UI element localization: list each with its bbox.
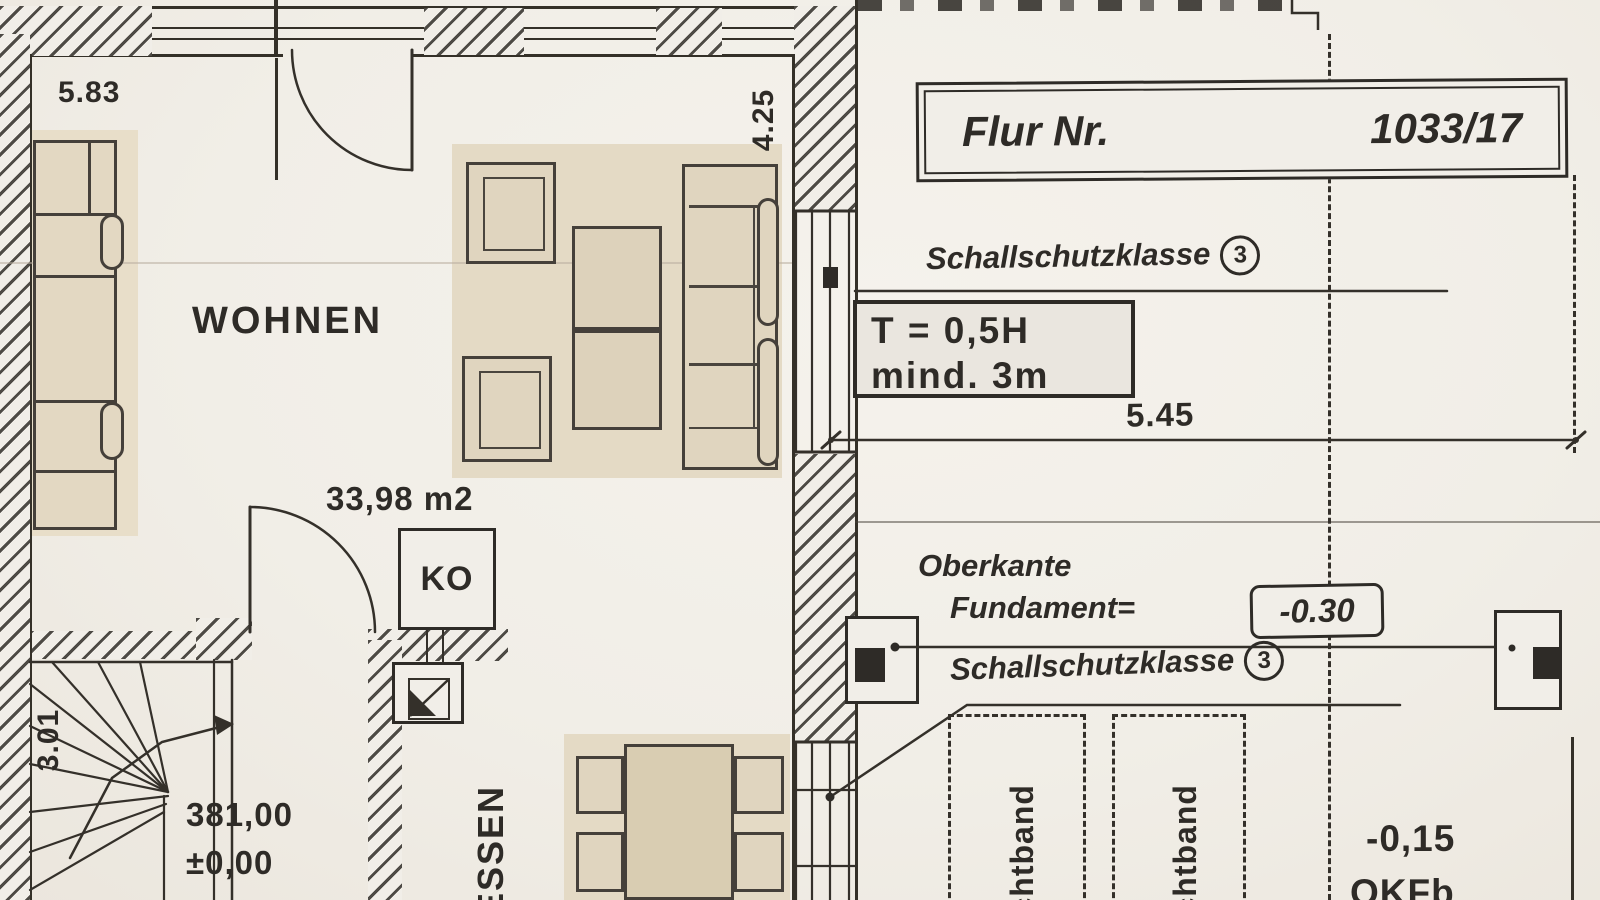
foundation-note-line1: Oberkante (918, 548, 1071, 584)
foundation-note-line2: Fundament= (950, 590, 1135, 626)
dimension-label-top: 5.83 (58, 76, 120, 110)
sound-class-top-text: Schallschutzklasse (926, 236, 1211, 276)
dimension-label-stairs: 3.01 (32, 680, 68, 800)
room-essen-label: ESSEN (470, 785, 511, 900)
sound-class-top: Schallschutzklasse3 (926, 235, 1261, 281)
chimney-detail (410, 680, 448, 716)
room-title: WOHNEN (192, 300, 383, 343)
parcel-floor-level: -0,15 (1366, 818, 1455, 860)
dimension-label-545: 5.45 (1126, 395, 1195, 434)
foundation-text2: Fundament= (950, 590, 1135, 625)
dim-425-value: 4.25 (747, 89, 780, 151)
parcel-number: 1033/17 (1370, 104, 1522, 153)
room-wohnen-label: WOHNEN (192, 300, 383, 342)
window-symbols (792, 211, 857, 900)
stove-box: KO (398, 528, 496, 630)
skylight-2-text: Lichtband (1167, 784, 1203, 900)
room-area-label: 33,98 m2 (326, 480, 473, 518)
dim-301-value: 3.01 (32, 709, 65, 771)
dining-room-title: ESSEN (470, 797, 510, 900)
floor-level-ref-value: OKFb (1350, 872, 1455, 900)
level-absolute-label: 381,00 (186, 796, 293, 834)
dim-583-value: 5.83 (58, 76, 120, 109)
dim-545-value: 5.45 (1126, 395, 1195, 433)
setback-line1: T = 0,5H (871, 308, 1131, 354)
foundation-level-value: -0.30 (1279, 591, 1355, 630)
level-zero-value: ±0,00 (186, 844, 273, 881)
level-relative-label: ±0,00 (186, 844, 273, 882)
parcel-label: Flur Nr. (962, 107, 1109, 156)
area-value: 33,98 m2 (326, 480, 473, 517)
dimension-line-545 (822, 432, 1585, 448)
skylight-label-2: Lichtband (1167, 760, 1203, 900)
skylight-1-text: Lichtband (1004, 784, 1040, 900)
foundation-level-box: -0.30 (1250, 583, 1385, 639)
parcel-floor-level-ref: OKFb (1350, 872, 1455, 900)
sound-class-bottom-badge: 3 (1244, 640, 1285, 681)
sound-class-top-badge: 3 (1220, 235, 1261, 276)
stove-label: KO (421, 560, 474, 599)
dimension-label-right: 4.25 (747, 60, 783, 180)
floor-level-value: -0,15 (1366, 818, 1455, 859)
foundation-text1: Oberkante (918, 548, 1071, 583)
parcel-number-box: Flur Nr. 1033/17 (916, 78, 1569, 183)
setback-rule-box: T = 0,5H mind. 3m (853, 300, 1135, 398)
setback-line2: mind. 3m (871, 354, 1131, 398)
skylight-label-1: Lichtband (1004, 760, 1040, 900)
floorplan-scan: 5.83 WOHNEN 33,98 m2 KO 4.25 3.01 ESSEN … (0, 0, 1600, 900)
survey-hook (1292, 0, 1318, 30)
level-381-value: 381,00 (186, 796, 293, 833)
